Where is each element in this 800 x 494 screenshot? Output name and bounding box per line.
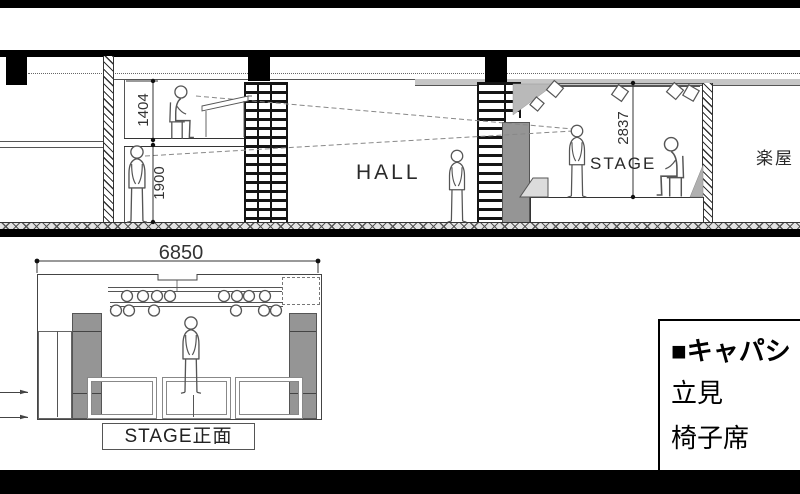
- speaker-stack-section: [502, 122, 530, 224]
- speaker-seam: [73, 331, 101, 332]
- light-truss-upper: [108, 287, 282, 292]
- stage-opening-top-line: [556, 83, 702, 84]
- person-stage: [568, 125, 587, 197]
- front-dashed-zone: [282, 277, 320, 305]
- capacity-standing: 立見: [671, 373, 723, 410]
- booth-left-wall-line: [124, 79, 125, 222]
- person-hall-left: [127, 146, 147, 222]
- light-truss-lower: [110, 302, 283, 307]
- door-leaf-line: [57, 331, 58, 417]
- dim-label-6850: 6850: [147, 242, 215, 260]
- dim-label-1404: 1404: [135, 80, 151, 140]
- speaker-seam: [290, 331, 316, 332]
- ceiling-dotted-line: [28, 73, 800, 74]
- front-view-caption-box: STAGE正面: [102, 423, 255, 450]
- beam-left: [6, 56, 27, 85]
- hall-label: HALL: [356, 161, 421, 185]
- guard-rail-center: [163, 378, 230, 418]
- roof-slab-band: [0, 50, 800, 57]
- scaffold-top-extension: [504, 82, 521, 118]
- leader-line-1: [0, 392, 28, 393]
- person-stage-seated: [657, 138, 685, 197]
- side-door: [38, 331, 72, 419]
- leader-line-2: [0, 417, 28, 418]
- scaffold-tower-left: [244, 82, 288, 222]
- capacity-seated: 椅子席: [671, 418, 749, 455]
- left-wall: [103, 56, 114, 223]
- stage-light-bar: [545, 85, 700, 87]
- top-border-bar: [0, 0, 800, 8]
- leader-arrowheads: [20, 390, 28, 419]
- outside-floor-line-2: [0, 147, 103, 148]
- bottom-border-bar: [0, 470, 800, 494]
- dim-label-2837: 2837: [615, 98, 631, 158]
- capacity-heading: ■キャパシ: [671, 331, 791, 368]
- center-stand-line: [193, 395, 194, 417]
- capacity-box: ■キャパシ 立見 椅子席: [658, 319, 800, 472]
- guard-rail-left: [88, 378, 156, 418]
- beam-center: [248, 56, 270, 81]
- dressing-room-label: 楽屋: [756, 144, 794, 169]
- drawing-sheet: STAGE正面 ■キャパシ 立見 椅子席: [0, 0, 800, 494]
- dim-label-1900: 1900: [151, 153, 167, 213]
- guard-rail-right: [236, 378, 302, 418]
- front-view-caption: STAGE正面: [125, 426, 233, 447]
- beam-right: [485, 56, 507, 85]
- floor-slab-band: [0, 229, 800, 237]
- outside-floor-line-1: [0, 141, 103, 142]
- person-hall-center: [448, 150, 467, 222]
- stage-platform: [530, 197, 704, 224]
- person-booth-seated: [169, 86, 194, 139]
